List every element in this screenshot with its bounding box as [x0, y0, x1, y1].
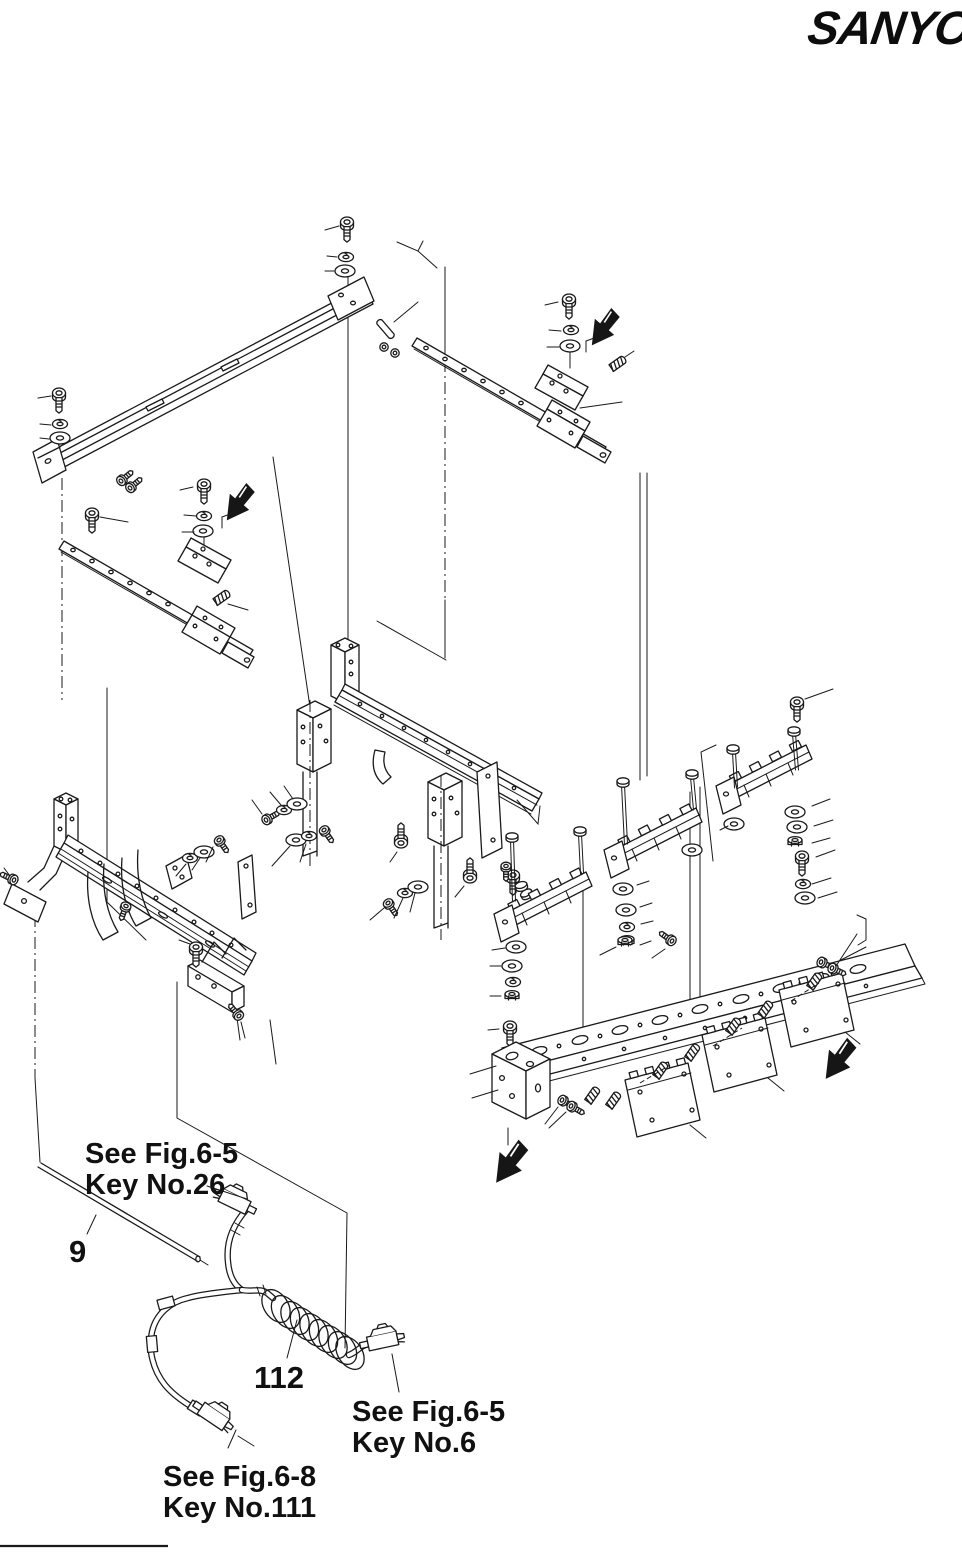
connector-key6	[357, 1320, 406, 1352]
screw-icon	[116, 901, 132, 922]
callout-part9: 9	[69, 1234, 86, 1269]
set-screw-icon	[213, 589, 232, 605]
screw-icon	[791, 697, 804, 722]
screw-icon	[796, 851, 809, 876]
screw-icon	[198, 479, 211, 504]
screw-icon	[53, 388, 66, 413]
callout-ref6-line1: See Fig.6-5	[352, 1396, 505, 1428]
screw-icon	[0, 869, 20, 886]
callout-ref111-line2: Key No.111	[163, 1492, 316, 1524]
callout-ref111-line1: See Fig.6-8	[163, 1461, 316, 1493]
screw-icon	[86, 508, 99, 533]
left-rail-assembly	[59, 479, 261, 668]
sanyo-logo: SANYO	[804, 2, 962, 55]
connector-key111	[190, 1390, 240, 1435]
screw-icon	[382, 897, 401, 918]
direction-arrow-icon	[582, 304, 626, 353]
callout-ref26-line1: See Fig.6-5	[85, 1138, 238, 1170]
screw-icon	[395, 823, 408, 848]
screw-icon	[563, 294, 576, 319]
set-screw-icon	[609, 355, 628, 371]
screw-icon	[213, 834, 232, 855]
direction-arrow-icon	[485, 1135, 535, 1191]
screw-icon	[341, 217, 354, 242]
center-beam-assembly	[252, 638, 542, 940]
lower-left-frame-assembly	[0, 793, 256, 1038]
screw-icon	[657, 928, 678, 947]
needle-bed-beam-assembly	[470, 928, 925, 1191]
upper-guide-rail-assembly	[33, 217, 437, 494]
set-screw-icon	[584, 1086, 600, 1105]
service-manual-page: See Fig.6-5 Key No.26 9 112 See Fig.6-5 …	[0, 0, 962, 1554]
screw-icon	[565, 1100, 587, 1118]
screw-icon	[318, 824, 337, 845]
direction-arrow-icon	[217, 479, 261, 528]
callout-ref26-line2: Key No.26	[85, 1169, 225, 1201]
cable-harness	[38, 1163, 406, 1448]
screw-icon	[464, 858, 477, 883]
set-screw-icon	[605, 1091, 621, 1110]
exploded-parts-diagram: See Fig.6-5 Key No.26 9 112 See Fig.6-5 …	[0, 0, 962, 1554]
callout-ref6-line2: Key No.6	[352, 1427, 476, 1459]
callout-part112: 112	[254, 1360, 304, 1395]
